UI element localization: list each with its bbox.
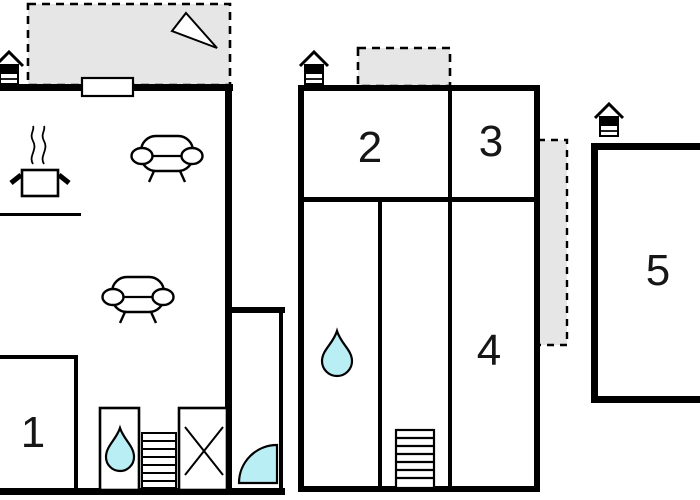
steam-icon [32, 126, 46, 164]
stove-pot-icon [11, 170, 69, 196]
entrance-house-icon-middle [300, 52, 328, 84]
room-label-4: 4 [477, 329, 501, 373]
entrance-house-icon-right [595, 104, 623, 136]
entrance-house-icon-left [0, 52, 23, 84]
wardrobe-x-icon [179, 408, 227, 490]
stairs-icon-left [142, 433, 176, 488]
terrace-middle [358, 48, 450, 86]
sofa-icon-bottom [103, 277, 174, 323]
water-drop-icon-middle [322, 331, 352, 376]
sofa-icon-top [132, 136, 203, 182]
window-icon [82, 78, 133, 96]
floor-plan-drawing [0, 0, 700, 500]
kitchen-counter-line [0, 213, 81, 216]
closet-with-drop [100, 408, 139, 490]
terrace-top-left [28, 4, 230, 85]
stairs-icon-middle [396, 430, 434, 488]
room-label-5: 5 [646, 249, 670, 293]
room-label-1: 1 [21, 411, 45, 455]
balcony-right [538, 140, 567, 345]
floor-plan: 1 2 3 4 5 [0, 0, 700, 500]
room-label-3: 3 [479, 120, 503, 164]
door-swing-icon [239, 445, 277, 483]
room-label-2: 2 [358, 126, 382, 170]
